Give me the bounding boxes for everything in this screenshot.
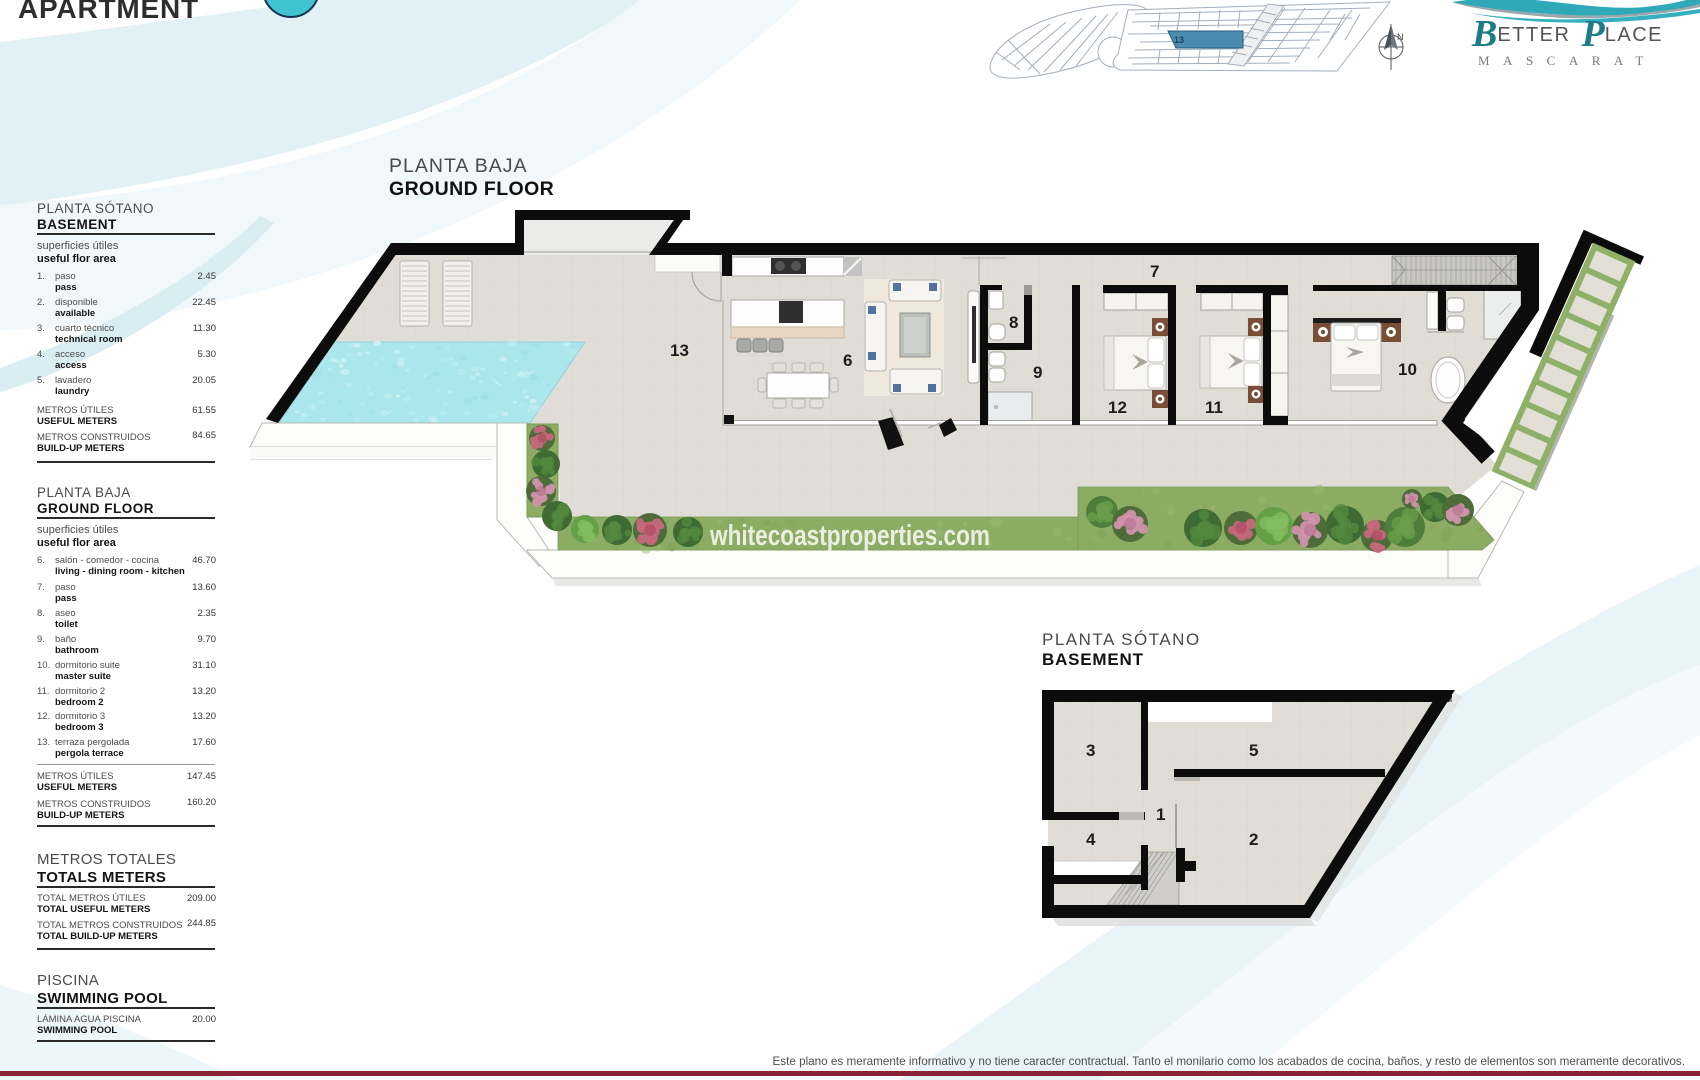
svg-text:13: 13 <box>670 341 689 360</box>
svg-text:4: 4 <box>1086 830 1096 849</box>
svg-text:13: 13 <box>1174 35 1184 45</box>
svg-text:12: 12 <box>1108 398 1127 417</box>
svg-text:2: 2 <box>1249 830 1258 849</box>
svg-text:5: 5 <box>1249 741 1258 760</box>
svg-text:3: 3 <box>1086 741 1095 760</box>
svg-text:whitecoastproperties.com: whitecoastproperties.com <box>709 520 990 552</box>
svg-text:N: N <box>1397 32 1404 42</box>
svg-text:1: 1 <box>1156 805 1165 824</box>
svg-text:6: 6 <box>843 351 852 370</box>
svg-text:8: 8 <box>1009 313 1018 332</box>
svg-text:7: 7 <box>1150 262 1159 281</box>
svg-text:11: 11 <box>1205 398 1223 417</box>
svg-text:10: 10 <box>1398 360 1417 379</box>
svg-text:9: 9 <box>1033 363 1042 382</box>
